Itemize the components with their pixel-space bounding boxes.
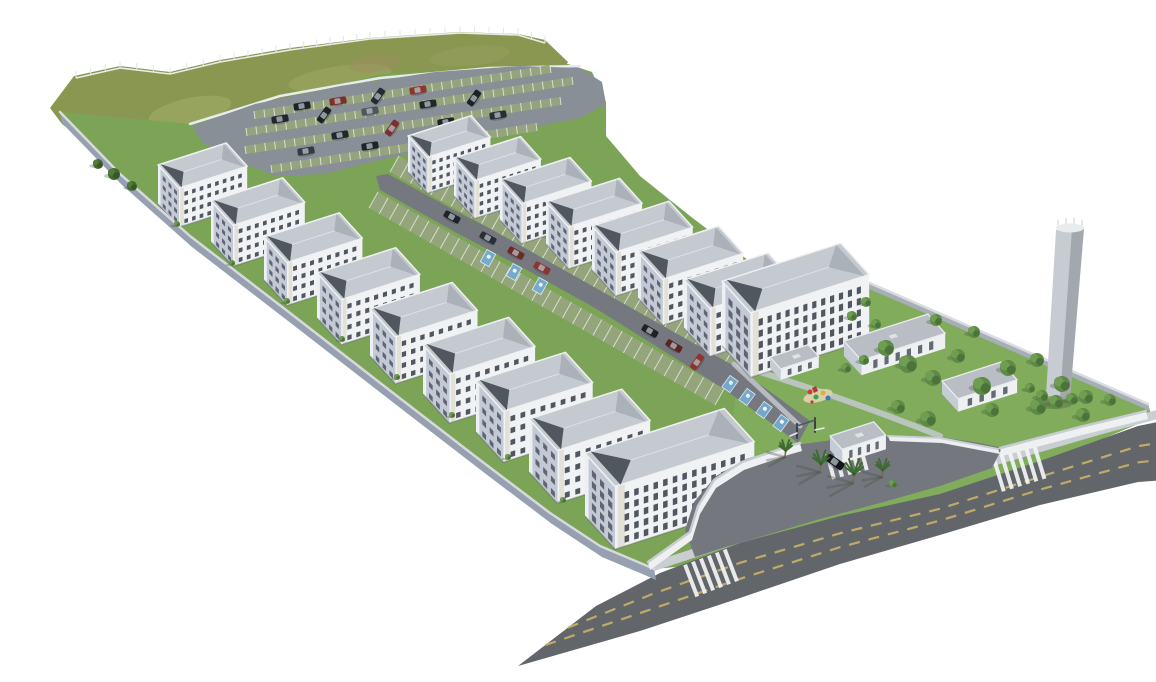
condominium-aerial-render — [40, 16, 1156, 666]
playground-equipment — [826, 396, 831, 401]
aerial-render-figure — [40, 16, 1156, 666]
tree — [89, 159, 103, 169]
playground-equipment — [808, 390, 813, 395]
playground-equipment — [814, 395, 819, 400]
playground-equipment — [821, 391, 826, 396]
water-tower-cap — [1056, 224, 1084, 233]
tree — [104, 168, 120, 180]
person — [810, 400, 813, 403]
